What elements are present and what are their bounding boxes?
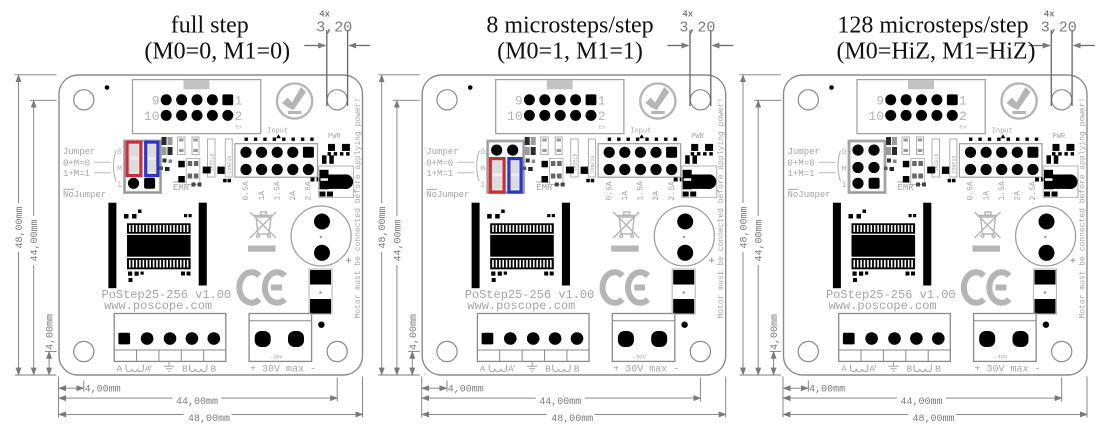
- svg-text:(M0=0, M1=0): (M0=0, M1=0): [144, 38, 290, 64]
- svg-text:4,00mm: 4,00mm: [85, 385, 121, 396]
- svg-text:4,00mm: 4,00mm: [809, 385, 845, 396]
- svg-text:48,00mm: 48,00mm: [912, 414, 954, 425]
- svg-text:full step: full step: [171, 13, 249, 39]
- svg-text:4,00mm: 4,00mm: [448, 385, 484, 396]
- svg-text:48,00mm: 48,00mm: [378, 206, 389, 248]
- svg-text:48,00mm: 48,00mm: [740, 206, 751, 248]
- svg-text:48,00mm: 48,00mm: [188, 414, 230, 425]
- svg-text:4,00mm: 4,00mm: [46, 314, 57, 350]
- svg-text:(M0=HiZ, M1=HiZ): (M0=HiZ, M1=HiZ): [836, 38, 1035, 64]
- svg-text:44,00mm: 44,00mm: [176, 397, 218, 408]
- svg-text:48,00mm: 48,00mm: [15, 206, 26, 248]
- svg-text:3,20: 3,20: [1041, 20, 1077, 37]
- svg-text:48,00mm: 48,00mm: [551, 414, 593, 425]
- svg-text:4x: 4x: [682, 10, 693, 20]
- svg-text:3,20: 3,20: [679, 20, 715, 37]
- svg-text:44,00mm: 44,00mm: [900, 397, 942, 408]
- svg-text:128 microsteps/step: 128 microsteps/step: [837, 13, 1028, 39]
- svg-text:44,00mm: 44,00mm: [393, 219, 404, 261]
- svg-text:4,00mm: 4,00mm: [409, 314, 420, 350]
- svg-text:4x: 4x: [319, 10, 330, 20]
- svg-text:8 microsteps/step: 8 microsteps/step: [486, 13, 653, 39]
- svg-text:4,00mm: 4,00mm: [770, 314, 781, 350]
- svg-text:44,00mm: 44,00mm: [539, 397, 581, 408]
- svg-text:(M0=1, M1=1): (M0=1, M1=1): [497, 38, 643, 64]
- svg-text:44,00mm: 44,00mm: [30, 219, 41, 261]
- svg-text:44,00mm: 44,00mm: [755, 219, 766, 261]
- svg-text:4x: 4x: [1044, 10, 1055, 20]
- svg-text:3,20: 3,20: [316, 20, 352, 37]
